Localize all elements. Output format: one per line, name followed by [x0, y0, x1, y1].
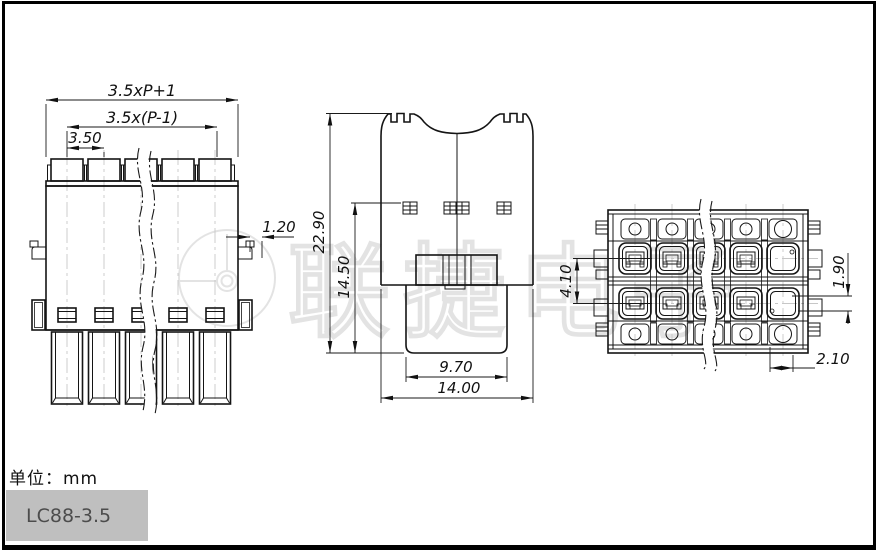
dim-front-wall: 1.20	[262, 218, 295, 236]
unit-label: 单位：mm	[9, 464, 98, 489]
front-break-mask	[137, 148, 155, 413]
dim-front-pitch: 3.50	[68, 129, 101, 147]
watermark-logo	[179, 230, 275, 326]
dim-side-plug-width: 9.70	[439, 358, 472, 376]
dim-top-row-pitch: 4.10	[557, 264, 575, 297]
part-number: LC88-3.5	[26, 505, 111, 527]
dim-side-body-height: 14.50	[335, 256, 353, 299]
dim-top-edge: 2.10	[816, 350, 849, 368]
dim-side-overall-width: 14.00	[438, 379, 481, 397]
dim-front-span: 3.5x(P-1)	[106, 108, 178, 127]
drawing-canvas: 联捷电子	[0, 0, 877, 550]
front-view: 3.5xP+1 3.5x(P-1) 3.50 1.20	[30, 81, 296, 414]
part-number-box: LC88-3.5	[6, 490, 148, 541]
dim-side-total-height: 22.90	[310, 211, 328, 254]
dim-top-slot: 1.90	[830, 255, 848, 288]
drawing-sheet: 联捷电子	[0, 0, 877, 550]
dim-front-overall: 3.5xP+1	[108, 81, 176, 100]
